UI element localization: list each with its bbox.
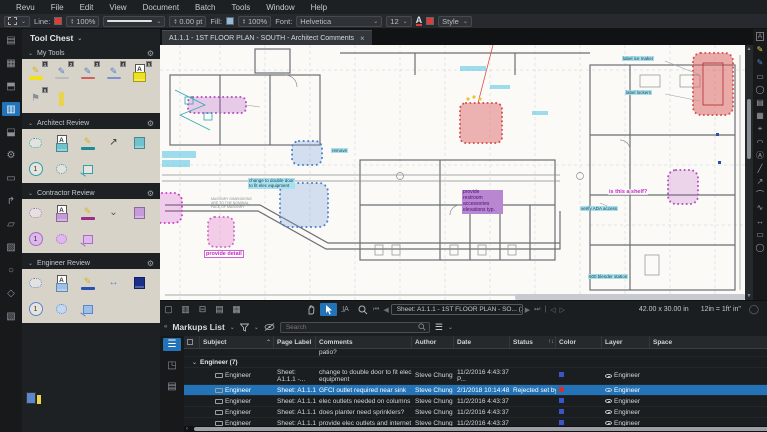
- drawing-canvas[interactable]: change to double door to fit elec equipm…: [160, 45, 745, 300]
- callout-tool-icon[interactable]: ▭: [756, 72, 764, 81]
- markup-sets-icon[interactable]: ⬓: [2, 125, 20, 139]
- close-icon[interactable]: ×: [360, 34, 365, 43]
- table-horizontal-scrollbar[interactable]: ‹ ›: [184, 426, 767, 432]
- chevron-down-icon: ⌄: [28, 260, 33, 267]
- links-icon[interactable]: ▧: [2, 309, 20, 323]
- scroll-thumb[interactable]: [747, 99, 751, 159]
- menu-revu[interactable]: Revu: [16, 3, 35, 12]
- tool-pen-red[interactable]: ✎ 3: [78, 62, 97, 84]
- note-masonry: MASONRY DIMENSIONS ARE TO THE NOMINAL FA…: [210, 197, 253, 209]
- section-engineer-review[interactable]: ⌄ Engineer Review ⚙: [22, 257, 160, 269]
- tool-note[interactable]: [130, 132, 149, 154]
- hide-markups-eye-icon[interactable]: [264, 323, 275, 331]
- circle-tool-icon[interactable]: ◯: [756, 243, 765, 252]
- tool-text-note-yellow[interactable]: A 5: [130, 62, 149, 84]
- table-row[interactable]: Engineer Sheet: A1.1.1 -... does planter…: [184, 407, 767, 418]
- contractor-tools-grid: A ✎ ⌄ 1: [22, 199, 160, 253]
- tool-note[interactable]: [130, 202, 149, 224]
- menu-view[interactable]: View: [109, 3, 126, 12]
- thumbnails-icon[interactable]: ▦: [2, 56, 20, 70]
- text-tool-icon[interactable]: A: [756, 32, 764, 41]
- fill-color-swatch[interactable]: [226, 17, 234, 25]
- count-circle-icon: 1: [29, 302, 43, 316]
- dashed-rect-icon: [8, 17, 17, 25]
- tool-highlighter-yellow[interactable]: ✎ 1: [26, 62, 45, 84]
- col-page-label[interactable]: Page Label: [274, 336, 316, 348]
- tool-pen-blue[interactable]: ✎ 4: [104, 62, 123, 84]
- single-page-view-icon[interactable]: ▢: [160, 303, 177, 316]
- pencil-icon: ✎: [84, 137, 92, 146]
- callout-icon: [83, 235, 93, 244]
- col-author[interactable]: Author: [412, 336, 454, 348]
- table-header-row: Subject⌃ Page Label Comments Author Date…: [184, 336, 767, 349]
- tool-cloud-free[interactable]: [52, 298, 71, 320]
- table-row-partial[interactable]: patio?: [184, 349, 767, 357]
- tool-dimension[interactable]: ↔: [104, 272, 123, 294]
- layers-icon[interactable]: ▱: [2, 217, 20, 231]
- tool-cloud-free[interactable]: [52, 158, 71, 180]
- table-row-selected[interactable]: Engineer Sheet: A1.1.1 -... GFCI outlet …: [184, 385, 767, 396]
- callout-icon: [215, 373, 223, 378]
- file-access-icon[interactable]: ▤: [2, 33, 20, 47]
- flags-icon[interactable]: ↱: [2, 194, 20, 208]
- tool-note[interactable]: [130, 272, 149, 294]
- menu-bar: Revu File Edit View Document Batch Tools…: [0, 0, 767, 14]
- tool-highlighter[interactable]: ✎: [78, 272, 97, 294]
- menu-tools[interactable]: Tools: [232, 3, 251, 12]
- tool-callout[interactable]: [78, 298, 97, 320]
- scroll-left-icon[interactable]: ‹: [184, 426, 188, 432]
- stamp-tool-icon[interactable]: Ⓐ: [756, 151, 764, 160]
- font-color-icon[interactable]: A: [416, 16, 423, 26]
- callout-icon: [215, 421, 223, 426]
- tool-highlight-block[interactable]: [52, 88, 71, 110]
- tool-partial-bottom[interactable]: [26, 391, 42, 407]
- gear-icon[interactable]: ⚙: [147, 49, 154, 58]
- font-size-dropdown[interactable]: 12⌄: [386, 16, 411, 27]
- col-layer[interactable]: Layer: [602, 336, 650, 348]
- tool-count-stamp[interactable]: 1: [26, 228, 45, 250]
- canvas-vertical-scrollbar[interactable]: ▲ ▼: [745, 45, 753, 300]
- bookmarks-icon[interactable]: ⬒: [2, 79, 20, 93]
- polyline-tool-icon[interactable]: ∿: [757, 203, 764, 212]
- ellipse-tool-icon[interactable]: ◯: [756, 85, 765, 94]
- studio-icon[interactable]: ▨: [2, 240, 20, 254]
- pencil-icon: ✎: [32, 66, 40, 75]
- stepper-arrows-icon: ▲▼: [70, 18, 74, 24]
- color-swatch: [559, 398, 564, 403]
- text-select-tool-icon[interactable]: I̲A: [337, 303, 354, 316]
- line-width-stepper[interactable]: ▲▼ 0.00 pt: [169, 16, 206, 27]
- table-row[interactable]: Engineer Sheet: A1.1.1 -... change to do…: [184, 368, 767, 385]
- note-blender[interactable]: 600 blender station: [588, 274, 628, 279]
- split-view-icon[interactable]: ⊟: [194, 303, 211, 316]
- eye-icon[interactable]: [605, 399, 612, 404]
- note-ada[interactable]: verify ADA access: [580, 206, 618, 211]
- tool-count-stamp[interactable]: 1: [26, 158, 45, 180]
- menu-batch[interactable]: Batch: [195, 3, 215, 12]
- tool-text-box[interactable]: A: [52, 202, 71, 224]
- solid-line-icon: [107, 20, 152, 22]
- color-swatch: [559, 409, 564, 414]
- note-double-door[interactable]: change to double door to fit elec equipm…: [248, 178, 295, 189]
- color-swatch: [559, 372, 564, 377]
- tool-arrow[interactable]: ↗: [104, 132, 123, 154]
- eye-icon[interactable]: [605, 374, 612, 379]
- settings-gear-icon[interactable]: ⚙: [2, 148, 20, 162]
- stepper-arrows-icon: ▲▼: [173, 18, 177, 24]
- curve-tool-icon[interactable]: ⌒: [756, 190, 764, 199]
- markup-tools-strip: A ✎ ✎ ▭ ◯ ▤ ▦ ⌖ ◠ Ⓐ ╱ ↗ ⌒ ∿ ↔ ▭ ◯: [753, 29, 767, 300]
- color-swatch: [559, 387, 564, 392]
- image-tool-icon[interactable]: ▦: [756, 111, 764, 120]
- tool-cloud[interactable]: [26, 202, 45, 224]
- arc-tool-icon[interactable]: ◠: [757, 138, 764, 147]
- pen-tool-icon[interactable]: ✎: [757, 58, 764, 67]
- left-panel-strip: ▤ ▦ ⬒ ▥ ⬓ ⚙ ▭ ↱ ▱ ▨ ○ ◇ ▧: [0, 29, 22, 432]
- scale-readout[interactable]: 12in = 1ft' in": [701, 306, 741, 313]
- tool-cloud-free[interactable]: [52, 228, 71, 250]
- note-icon: [134, 277, 145, 289]
- fill-label: Fill:: [210, 17, 222, 26]
- navigation-bar: ▢ ▥ ⊟ ▤ ▦ I̲A ⏮ ◀ Sheet: A1.1.1 - 1ST FL…: [160, 300, 767, 318]
- tool-highlighter[interactable]: ✎: [78, 132, 97, 154]
- tool-chest-panel: Tool Chest⌄ ⌄ My Tools ⚙ ✎ 1 ✎ 2 ✎ 3 ✎ 4: [22, 29, 160, 432]
- 3d-model-tab-icon[interactable]: ◳: [163, 359, 181, 372]
- bottom-panel-tabs: ☰ ◳ ▤: [160, 336, 184, 432]
- chevron-down-icon: ⌄: [28, 120, 33, 127]
- gear-icon[interactable]: ⚙: [147, 119, 154, 128]
- tool-callout[interactable]: [78, 158, 97, 180]
- tool-cloud[interactable]: [26, 272, 45, 294]
- chevron-down-icon: ⌄: [28, 50, 33, 57]
- floor-plan-drawing: [160, 45, 745, 300]
- markups-list-panel: « Markups List ⌄ ⌄ ☰ ⌄ ☰ ◳ ▤ Subject⌃ Pa…: [160, 318, 767, 432]
- collapse-panel-icon[interactable]: «: [164, 324, 167, 330]
- cloud-icon: [56, 164, 67, 174]
- sync-views-icon[interactable]: ▤: [211, 303, 228, 316]
- spaces-icon[interactable]: ◇: [2, 286, 20, 300]
- my-tools-grid: ✎ 1 ✎ 2 ✎ 3 ✎ 4 A 5 ⚑ 6: [22, 59, 160, 113]
- tool-flag[interactable]: ⚑ 6: [26, 88, 45, 110]
- font-label: Font:: [275, 17, 292, 26]
- note-lockers[interactable]: label lockers: [625, 90, 652, 95]
- rectangle-tool-icon[interactable]: ▭: [756, 230, 764, 239]
- search-box[interactable]: [280, 322, 430, 333]
- last-page-icon[interactable]: ⏭: [532, 306, 542, 314]
- arrow-icon: ↗: [109, 138, 117, 148]
- sticky-note-icon: [133, 72, 146, 82]
- search-input[interactable]: [284, 323, 418, 332]
- sync-status-icon[interactable]: ◯: [747, 304, 761, 315]
- table-row[interactable]: Engineer Sheet: A1.1.1 -... elec outlets…: [184, 396, 767, 407]
- tool-chest-icon[interactable]: ▥: [2, 102, 20, 116]
- document-tab[interactable]: A1.1.1 - 1ST FLOOR PLAN - SOUTH - Archit…: [162, 30, 372, 45]
- chevron-down-icon: ⌄: [448, 324, 453, 331]
- markups-header: « Markups List ⌄ ⌄ ☰ ⌄: [160, 318, 767, 336]
- col-comments[interactable]: Comments: [316, 336, 412, 348]
- select-all-checkbox[interactable]: [184, 336, 200, 348]
- cloud-icon: [29, 208, 42, 218]
- chevron-down-icon: ⌄: [230, 324, 235, 331]
- document-tab-title: A1.1.1 - 1ST FLOOR PLAN - SOUTH - Archit…: [169, 35, 354, 42]
- prev-view-icon[interactable]: ◁: [548, 306, 557, 314]
- tool-cloud[interactable]: [26, 132, 45, 154]
- prev-page-icon[interactable]: ◀: [381, 306, 390, 314]
- eye-icon[interactable]: [605, 388, 612, 393]
- note-tool-icon[interactable]: ▤: [756, 98, 764, 107]
- group-row-engineer[interactable]: ⌄ Engineer (7): [184, 357, 767, 368]
- note-shelf[interactable]: is this a shelf?: [608, 189, 648, 195]
- section-my-tools[interactable]: ⌄ My Tools ⚙: [22, 47, 160, 59]
- markups-title[interactable]: Markups List: [172, 322, 224, 332]
- tool-polyline[interactable]: ⌄: [104, 202, 123, 224]
- page-size-readout: 42.00 x 30.00 in: [639, 306, 689, 313]
- cloud-icon: [56, 234, 67, 244]
- side-by-side-view-icon[interactable]: ▥: [177, 303, 194, 316]
- count-circle-icon: 1: [29, 232, 43, 246]
- engineer-tools-grid: A ✎ ↔ 1: [22, 269, 160, 323]
- count-circle-icon: 1: [29, 162, 43, 176]
- note-ice-maker[interactable]: label ice maker: [622, 56, 654, 61]
- pencil-icon: ✎: [84, 207, 92, 216]
- col-color[interactable]: Color: [556, 336, 602, 348]
- chevron-down-icon: ⌄: [28, 190, 33, 197]
- zoom-tool-icon[interactable]: [354, 303, 371, 316]
- line-label: Line:: [34, 17, 50, 26]
- tool-sets-icon[interactable]: ▭: [2, 171, 20, 185]
- color-swatch: [559, 420, 564, 425]
- tool-text-box[interactable]: A: [52, 272, 71, 294]
- crop-tool-icon[interactable]: ⌖: [758, 124, 763, 133]
- scroll-up-icon[interactable]: ▲: [747, 46, 752, 52]
- arrow-tool-icon[interactable]: ↗: [757, 177, 764, 186]
- chevron-down-icon[interactable]: ⌄: [254, 324, 259, 331]
- markups-list-tab-icon[interactable]: ☰: [163, 338, 181, 351]
- menu-document[interactable]: Document: [143, 3, 179, 12]
- note-remove[interactable]: remove: [331, 148, 348, 153]
- next-view-icon[interactable]: ▷: [558, 306, 567, 314]
- architect-tools-grid: A ✎ ↗ 1: [22, 129, 160, 183]
- cloud-icon: [56, 304, 67, 314]
- search-icon[interactable]: ○: [2, 263, 20, 277]
- table-row[interactable]: Engineer Sheet: A1.1.1 -... provide elec…: [184, 418, 767, 426]
- dimension-icon: ↔: [109, 278, 119, 288]
- section-architect-review[interactable]: ⌄ Architect Review ⚙: [22, 117, 160, 129]
- gear-icon[interactable]: ⚙: [147, 189, 154, 198]
- scroll-down-icon[interactable]: ▼: [747, 293, 752, 299]
- tool-callout[interactable]: [78, 228, 97, 250]
- col-subject[interactable]: Subject⌃: [200, 336, 274, 348]
- note-icon: [134, 137, 145, 149]
- flag-icon: ⚑: [31, 94, 40, 104]
- eye-icon[interactable]: [605, 421, 612, 426]
- tool-highlighter[interactable]: ✎: [78, 202, 97, 224]
- highlighter-tool-icon[interactable]: ✎: [757, 45, 764, 54]
- callout-icon: [215, 410, 223, 415]
- font-family-dropdown[interactable]: Helvetica⌄: [296, 16, 382, 27]
- list-options-icon[interactable]: ☰: [435, 322, 443, 333]
- tool-text-box[interactable]: A: [52, 132, 71, 154]
- next-page-icon[interactable]: ▶: [523, 306, 532, 314]
- col-status[interactable]: Status↑↓: [510, 336, 556, 348]
- fill-opacity-stepper[interactable]: ▲▼ 100%: [238, 16, 271, 27]
- section-contractor-review[interactable]: ⌄ Contractor Review ⚙: [22, 187, 160, 199]
- pencil-icon: ✎: [84, 277, 92, 286]
- filter-funnel-icon[interactable]: [240, 323, 249, 332]
- col-date[interactable]: Date: [454, 336, 510, 348]
- callout-icon: [83, 305, 93, 314]
- search-icon: [418, 323, 426, 331]
- forms-tab-icon[interactable]: ▤: [163, 380, 181, 393]
- callout-icon: [83, 165, 93, 174]
- document-tab-bar: A1.1.1 - 1ST FLOOR PLAN - SOUTH - Archit…: [160, 29, 753, 45]
- pen-icon: ✎: [110, 67, 118, 76]
- note-provide-detail[interactable]: provide detail: [204, 250, 244, 258]
- yellow-highlight-icon: [59, 92, 64, 106]
- markups-table: Subject⌃ Page Label Comments Author Date…: [184, 336, 767, 426]
- dimension-tool-icon[interactable]: ↔: [756, 217, 764, 226]
- style-dropdown[interactable]: Style⌄: [438, 16, 472, 27]
- tool-chest-title[interactable]: Tool Chest⌄: [22, 29, 160, 47]
- line-opacity-stepper[interactable]: ▲▼ 100%: [66, 16, 99, 27]
- sheet-selector[interactable]: Sheet: A1.1.1 - 1ST FLOOR PLAN - SO... (…: [391, 304, 523, 315]
- pan-tool-icon[interactable]: [303, 303, 320, 316]
- tool-count-stamp[interactable]: 1: [26, 298, 45, 320]
- selection-style-dropdown[interactable]: ⌄: [4, 16, 30, 27]
- menu-window[interactable]: Window: [266, 3, 294, 12]
- callout-icon: [215, 399, 223, 404]
- tool-pen-white[interactable]: ✎ 2: [52, 62, 71, 84]
- chevron-down-icon: ⌄: [192, 359, 197, 366]
- menu-file[interactable]: File: [51, 3, 64, 12]
- cloud-icon: [29, 138, 42, 148]
- stepper-arrows-icon: ▲▼: [242, 18, 246, 24]
- note-icon: [134, 207, 145, 219]
- cloud-icon: [29, 278, 42, 288]
- line-style-dropdown[interactable]: ⌄: [103, 16, 165, 27]
- gear-icon[interactable]: ⚙: [147, 259, 154, 268]
- select-tool-icon[interactable]: [320, 303, 337, 316]
- line-tool-icon[interactable]: ╱: [758, 164, 763, 173]
- scroll-thumb[interactable]: [194, 427, 767, 431]
- vee-line-icon: ⌄: [109, 208, 117, 218]
- callout-icon: [215, 388, 223, 393]
- multi-page-icon[interactable]: ▦: [228, 303, 245, 316]
- first-page-icon[interactable]: ⏮: [371, 306, 381, 314]
- properties-toolbar: ⌄ Line: ▲▼ 100% ⌄ ▲▼ 0.00 pt Fill: ▲▼ 10…: [0, 14, 767, 29]
- col-space[interactable]: Space: [650, 336, 767, 348]
- pen-icon: ✎: [58, 67, 66, 76]
- menu-edit[interactable]: Edit: [80, 3, 94, 12]
- font-color-swatch[interactable]: [426, 17, 434, 25]
- note-restroom[interactable]: provide restroom accessories elevations …: [462, 190, 503, 214]
- eye-icon[interactable]: [605, 410, 612, 415]
- menu-help[interactable]: Help: [311, 3, 327, 12]
- pen-icon: ✎: [84, 67, 92, 76]
- revu-app-window: Revu File Edit View Document Batch Tools…: [0, 0, 767, 432]
- line-color-swatch[interactable]: [54, 17, 62, 25]
